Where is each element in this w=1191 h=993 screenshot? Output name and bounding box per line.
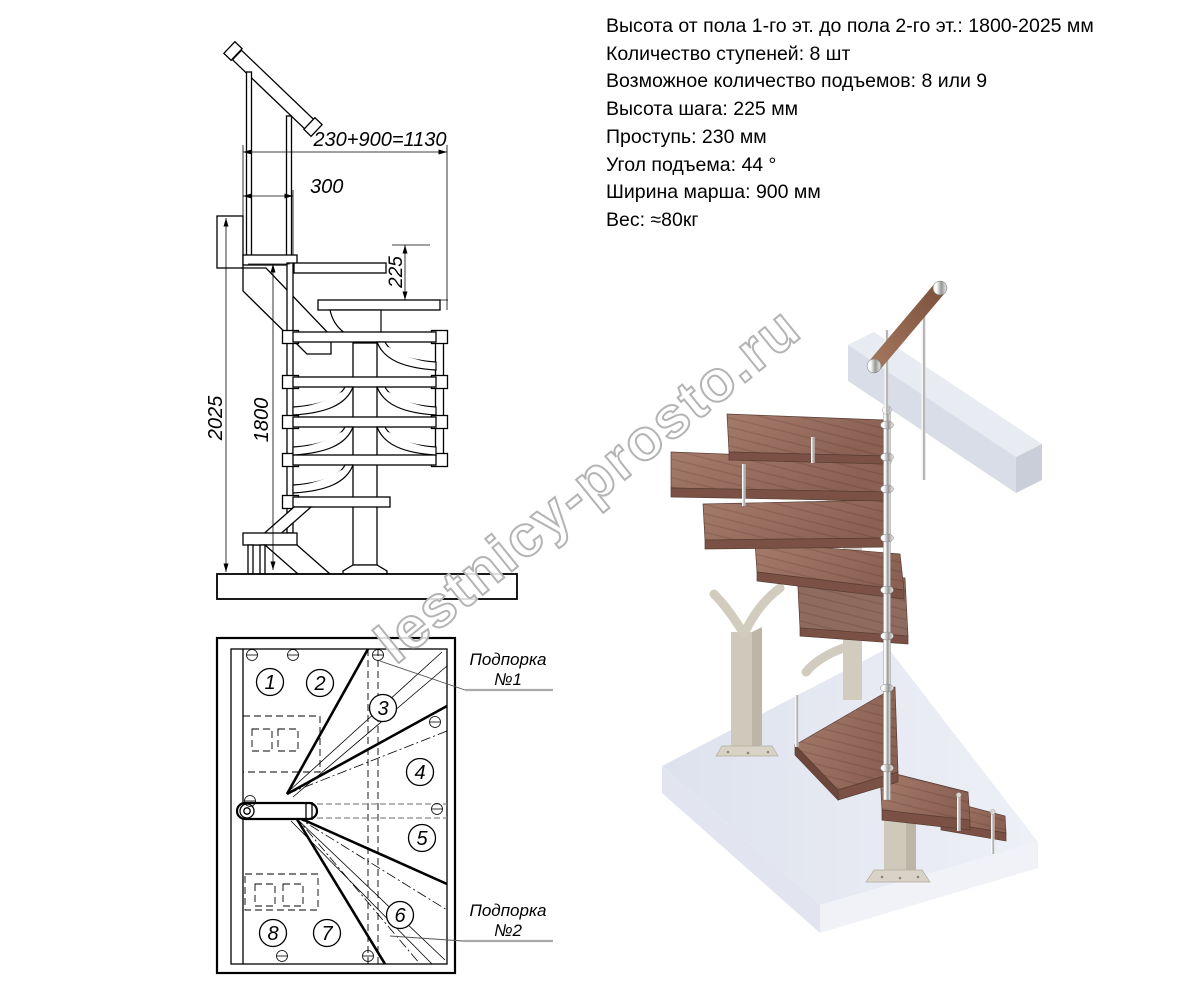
step-number-7: 7 (314, 920, 341, 947)
step-board (265, 545, 330, 574)
page: Высота от пола 1-го эт. до пола 2-го эт.… (0, 0, 1191, 993)
step-number-4: 4 (407, 759, 434, 786)
side-view-drawing: 230+900=1130 300 225 2025 1800 (205, 42, 517, 599)
step-number-5: 5 (409, 825, 436, 852)
fence-post (287, 263, 293, 533)
tread-rail (293, 497, 390, 507)
svg-text:2: 2 (313, 673, 325, 695)
step-number-1: 1 (257, 669, 284, 696)
step-number-6: 6 (387, 902, 414, 929)
support-label-text: №1 (494, 670, 522, 689)
bottom-post (248, 545, 253, 574)
dimension-label: 225 (386, 256, 407, 289)
tread-rail (293, 455, 436, 465)
drawing-canvas: 230+900=1130 300 225 2025 1800 (0, 0, 1191, 993)
svg-text:8: 8 (267, 923, 278, 945)
dimension-label: 230+900=1130 (312, 129, 446, 151)
plan-center-support (237, 802, 317, 820)
step-number-8: 8 (260, 920, 287, 947)
wall-plate (217, 216, 243, 268)
plan-view-drawing: 1 2 3 4 5 6 7 8 Подпорка №1 Подпорка №2 (217, 638, 553, 973)
step-number-2: 2 (307, 670, 334, 697)
dimension-label: 300 (310, 176, 343, 198)
dimension-label: 2025 (205, 395, 227, 441)
handrail-post (247, 72, 252, 257)
dimension-total-height: 2025 (205, 218, 227, 572)
handrail-board (233, 50, 314, 128)
svg-text:5: 5 (416, 828, 428, 850)
stair-tread (727, 414, 886, 464)
fence-post (436, 332, 444, 465)
bottom-post (260, 545, 265, 574)
bottom-step (243, 533, 297, 545)
support-label-text: №2 (494, 921, 522, 940)
svg-text:6: 6 (394, 905, 406, 927)
tread (294, 263, 386, 273)
support-label-text: Подпорка (470, 650, 547, 669)
dimension-total-run: 230+900=1130 (243, 129, 447, 152)
svg-text:4: 4 (414, 762, 425, 784)
stair-tread (703, 500, 888, 549)
dimension-label: 1800 (251, 398, 273, 443)
center-column (353, 343, 377, 565)
svg-text:3: 3 (377, 698, 388, 720)
handrail-end-cap (933, 281, 947, 295)
tread (318, 300, 440, 310)
handrail-post (287, 116, 292, 263)
column-base (343, 565, 387, 574)
tread-rail (293, 377, 436, 387)
tread-rail (293, 417, 436, 427)
baluster (922, 298, 926, 480)
dimension-rise: 225 (386, 245, 448, 300)
svg-text:7: 7 (321, 923, 333, 945)
step-number-3: 3 (370, 695, 397, 722)
svg-text:1: 1 (264, 672, 275, 694)
support-label-text: Подпорка (470, 901, 547, 920)
handrail-end-cap (867, 359, 881, 373)
tread-rail (293, 332, 436, 342)
